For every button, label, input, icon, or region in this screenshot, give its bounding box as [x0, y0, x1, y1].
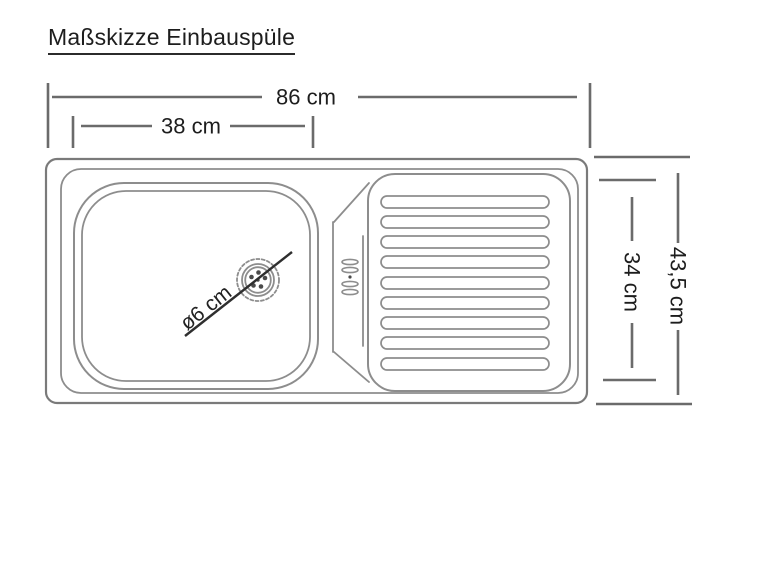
label-inner-depth: 34 cm	[620, 252, 645, 312]
label-basin-width: 38 cm	[161, 114, 221, 139]
divider-neck	[333, 183, 369, 382]
label-total-width: 86 cm	[276, 85, 336, 110]
measurement-sketch-page: Maßskizze Einbauspüle	[0, 0, 770, 578]
drainboard-ribs	[381, 196, 549, 370]
sink-dimension-drawing: 86 cm 38 cm 43,5 cm 34 cm ø6 cm	[0, 0, 770, 578]
basin-outer-contour	[74, 183, 318, 389]
label-drain-diameter: ø6 cm	[176, 281, 236, 335]
sink-inner-rim	[61, 169, 578, 393]
sink-drawing	[46, 159, 587, 403]
label-total-depth: 43,5 cm	[666, 247, 691, 325]
tap-hole-marks	[342, 259, 358, 294]
basin-inner-contour	[82, 191, 310, 381]
dimension-lines	[48, 83, 692, 404]
